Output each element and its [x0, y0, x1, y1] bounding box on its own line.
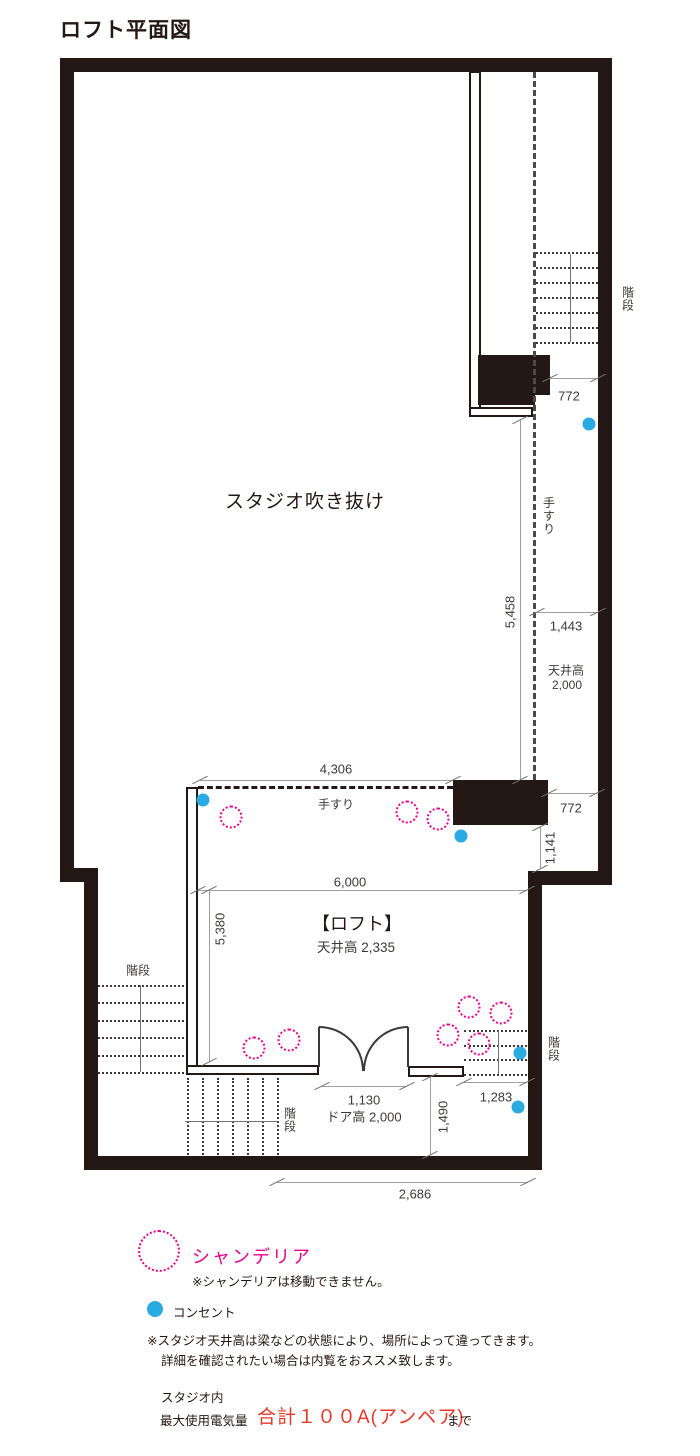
chandelier-marker	[427, 808, 450, 831]
stair-step-line	[98, 1055, 184, 1057]
floor-plan-page: ロフト平面図 階段 スタジオ吹き抜け 手すり	[0, 0, 700, 1456]
stair-center-line	[498, 1030, 499, 1074]
stair-step-line	[464, 1074, 527, 1076]
dimension-value: 1,141	[543, 832, 558, 865]
outlet-marker	[197, 794, 210, 807]
chandelier-marker	[396, 801, 419, 824]
loft-railing-bottom	[186, 1065, 319, 1075]
stair-step-line	[98, 1072, 184, 1074]
stair-step-line	[536, 252, 598, 254]
stair-step-line	[202, 1078, 204, 1155]
dimension-value: 772	[560, 801, 582, 816]
dimension-value: 5,458	[503, 596, 518, 629]
wall-left-lower	[84, 882, 98, 1170]
stair-step-line	[262, 1078, 264, 1155]
stair-center-line	[140, 985, 141, 1072]
door-swing-arc-right	[363, 1026, 408, 1071]
stairs-label-bottom-center: 階段	[282, 1107, 299, 1133]
wall-bottom	[84, 1156, 542, 1170]
stair-center-line	[570, 254, 571, 342]
ceiling-note-line2: 詳細を確認されたい場合は内覧をおススメ致します。	[161, 1350, 460, 1369]
stair-railing-upper-foot	[469, 407, 533, 417]
stair-landing-upper-step	[478, 395, 535, 405]
door-jamb-right	[408, 1066, 464, 1077]
chandelier-legend-icon	[138, 1230, 180, 1272]
ceiling-note-line1: ※スタジオ天井高は梁などの状態により、場所によって違ってきます。	[147, 1330, 541, 1349]
stairs-label-bottom-right: 階段	[546, 1036, 563, 1062]
outlet-legend-label: コンセント	[173, 1302, 236, 1321]
handrail-loft-label: 手すり	[318, 796, 354, 813]
stair-step-line	[464, 1030, 527, 1032]
stair-landing-upper	[478, 355, 550, 395]
stair-step-line	[98, 985, 184, 987]
chandelier-marker	[278, 1029, 301, 1052]
outlet-marker	[512, 1101, 525, 1114]
dimension-value: 1,283	[480, 1090, 513, 1105]
stair-step-line	[277, 1078, 279, 1155]
outlet-marker	[455, 830, 468, 843]
loft-ceiling-label: 天井高 2,335	[317, 936, 395, 956]
loft-railing-left	[186, 787, 198, 1075]
chandelier-marker	[458, 996, 481, 1019]
wall-left-upper	[60, 58, 74, 882]
stair-step-line	[536, 297, 598, 299]
chandelier-legend-label: シャンデリア	[192, 1243, 312, 1269]
loft-landing-block	[453, 780, 548, 825]
stair-step-line	[98, 1002, 184, 1004]
loft-name-label: 【ロフト】	[312, 910, 402, 936]
stair-step-line	[536, 267, 598, 269]
outlet-marker	[583, 418, 596, 431]
dimension-value: 4,306	[320, 762, 353, 777]
stair-step-line	[98, 1020, 184, 1022]
ceiling-height-side-line2: 2,000	[552, 678, 582, 692]
wall-left-step	[60, 868, 98, 882]
loft-edge-dashed-line	[533, 72, 536, 780]
power-note-line2: 最大使用電気量	[160, 1410, 248, 1429]
chandelier-marker	[220, 806, 243, 829]
studio-void-label: スタジオ吹き抜け	[225, 487, 385, 514]
dimension-value: 1,443	[550, 619, 583, 634]
chandelier-marker	[437, 1024, 460, 1047]
wall-right-upper	[598, 58, 612, 885]
wall-right-lower	[528, 871, 542, 1170]
dimension-value: 5,380	[213, 913, 228, 946]
power-note-line1: スタジオ内	[161, 1387, 224, 1406]
dimension-value: 1,130	[348, 1093, 381, 1108]
stair-step-line	[187, 1078, 189, 1155]
stair-step-line	[217, 1078, 219, 1155]
door-height-label: ドア高 2,000	[326, 1107, 401, 1126]
page-title: ロフト平面図	[60, 14, 192, 44]
dimension-value: 772	[558, 389, 580, 404]
stairs-label-top-right: 階段	[620, 286, 637, 312]
stair-step-line	[536, 327, 598, 329]
stair-step-line	[247, 1078, 249, 1155]
stair-step-line	[536, 282, 598, 284]
stair-step-line	[232, 1078, 234, 1155]
chandelier-legend-note: ※シャンデリアは移動できません。	[192, 1271, 390, 1290]
chandelier-marker	[468, 1033, 491, 1056]
stairs-label-bottom-left: 階段	[126, 962, 150, 979]
ceiling-height-side-line1: 天井高	[548, 662, 584, 679]
wall-top	[60, 58, 612, 72]
dimension-value: 6,000	[334, 875, 367, 890]
outlet-marker	[514, 1047, 527, 1060]
chandelier-marker	[490, 1002, 513, 1025]
stair-step-line	[536, 312, 598, 314]
power-capacity-value: 合計１００A(アンペア)	[257, 1402, 465, 1429]
stair-step-line	[98, 1037, 184, 1039]
handrail-side-label: 手すり	[541, 497, 558, 536]
dimension-value: 1,490	[436, 1101, 451, 1134]
chandelier-marker	[243, 1037, 266, 1060]
stair-center-line	[185, 1121, 278, 1122]
outlet-legend-icon	[147, 1301, 163, 1317]
door-swing-arc-left	[319, 1026, 364, 1071]
power-capacity-suffix: まで	[447, 1410, 472, 1429]
loft-handrail-dashed	[198, 786, 453, 789]
stair-step-line	[536, 342, 598, 344]
dimension-value: 2,686	[399, 1187, 432, 1202]
